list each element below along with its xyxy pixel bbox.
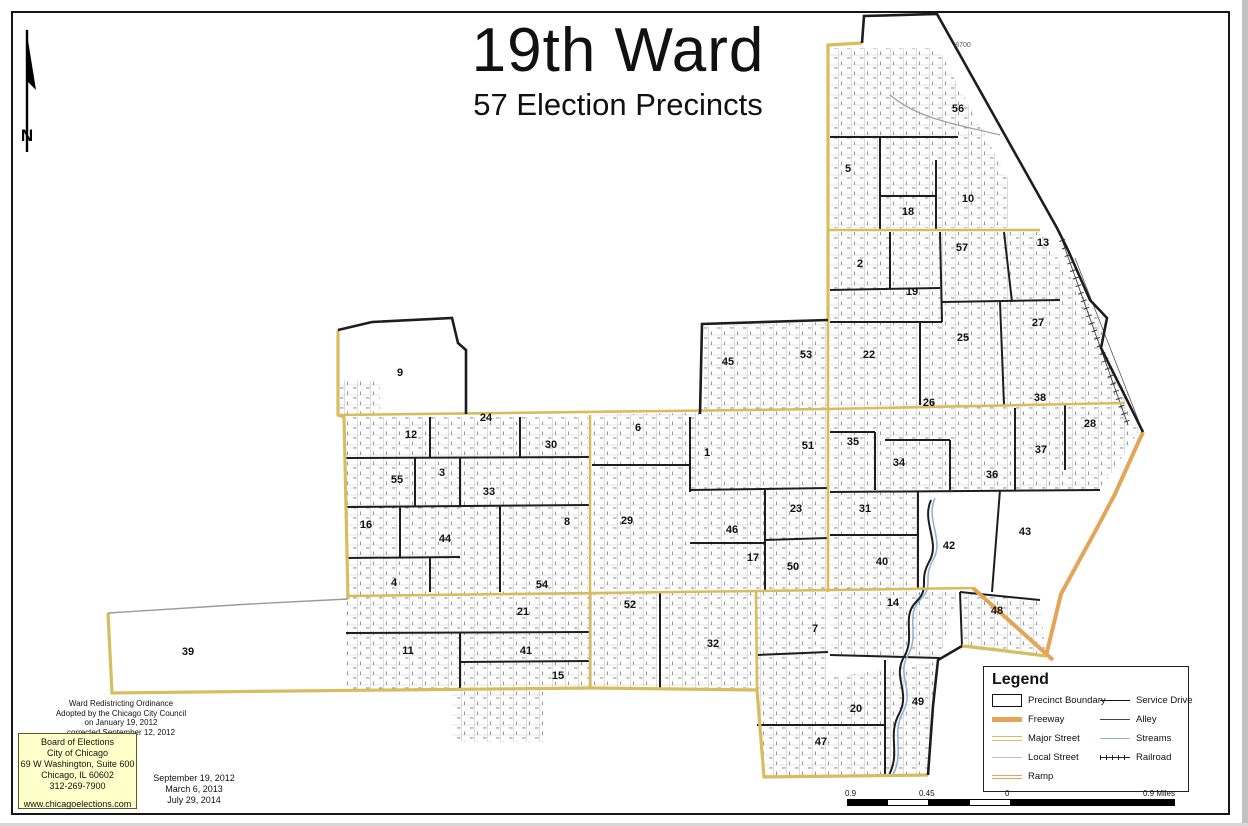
ordinance-note: Ward Redistricting OrdinanceAdopted by t… (26, 699, 216, 737)
legend-item-label: Major Street (1028, 733, 1080, 744)
precinct-1-label: 1 (704, 447, 710, 459)
precinct-36-label: 36 (986, 469, 998, 481)
precinct-2-label: 2 (857, 258, 863, 270)
major-street-swatch-icon (992, 736, 1022, 741)
precinct-50-label: 50 (787, 561, 799, 573)
legend-item: Major Street (992, 732, 1092, 745)
text-line: September 19, 2012 (138, 773, 250, 784)
legend-item: Streams (1100, 732, 1192, 745)
precinct-3-label: 3 (439, 467, 445, 479)
precinct-54-label: 54 (536, 579, 549, 591)
text-line: 312-269-7900 (19, 781, 136, 792)
precinct-49-label: 49 (912, 696, 924, 708)
text-line: Ward Redistricting Ordinance (26, 699, 216, 709)
precinct-10-label: 10 (962, 193, 974, 205)
precinct-boundary-swatch-icon (992, 694, 1022, 707)
precinct-12-label: 12 (405, 429, 417, 441)
scale-label-zero: 0 (1005, 789, 1009, 798)
legend-title: Legend (992, 671, 1188, 689)
legend-item: Alley (1100, 713, 1192, 726)
precinct-45-label: 45 (722, 356, 734, 368)
legend-item: Freeway (992, 713, 1092, 726)
precinct-15-label: 15 (552, 670, 564, 682)
precinct-52-label: 52 (624, 599, 636, 611)
local-street-swatch-icon (992, 757, 1022, 758)
precinct-43-label: 43 (1019, 526, 1031, 538)
text-line: on January 19, 2012 (26, 718, 216, 728)
legend-right-column: Service DriveAlleyStreamsRailroad (1100, 694, 1192, 783)
precinct-55-label: 55 (391, 474, 403, 486)
precinct-56-label: 56 (952, 103, 964, 115)
precinct-17-label: 17 (747, 552, 759, 564)
railroad-swatch-icon (1100, 755, 1130, 760)
legend-item-label: Ramp (1028, 771, 1053, 782)
precinct-57-label: 57 (956, 242, 968, 254)
precinct-5-label: 5 (845, 163, 851, 175)
precinct-34-label: 34 (893, 457, 906, 469)
text-line: City of Chicago (19, 748, 136, 759)
legend-item-label: Service Drive (1136, 695, 1193, 706)
precinct-8-label: 8 (564, 516, 570, 528)
legend-box: Legend Precinct BoundaryFreewayMajor Str… (983, 666, 1189, 792)
precinct-9-label: 9 (397, 367, 403, 379)
precinct-40-label: 40 (876, 556, 888, 568)
alley-swatch-icon (1100, 719, 1130, 720)
scale-label-left: 0.9 (845, 789, 856, 798)
legend-item: Ramp (992, 770, 1092, 783)
ward-map-page: N 12345678910111213141516171819202122232… (0, 0, 1248, 826)
precinct-48-label: 48 (991, 605, 1003, 617)
precinct-28-label: 28 (1084, 418, 1096, 430)
precinct-6-label: 6 (635, 422, 641, 434)
precinct-26-label: 26 (923, 397, 935, 409)
legend-item: Precinct Boundary (992, 694, 1092, 707)
legend-item-label: Railroad (1136, 752, 1171, 763)
legend-left-column: Precinct BoundaryFreewayMajor StreetLoca… (992, 694, 1092, 783)
legend-item: Railroad (1100, 751, 1192, 764)
precinct-29-label: 29 (621, 515, 633, 527)
legend-item-label: Freeway (1028, 714, 1064, 725)
precinct-32-label: 32 (707, 638, 719, 650)
freeway-swatch-icon (992, 717, 1022, 722)
text-line: July 29, 2014 (138, 795, 250, 806)
text-line: Board of Elections (19, 737, 136, 748)
precinct-20-label: 20 (850, 703, 862, 715)
legend-item-label: Local Street (1028, 752, 1079, 763)
precinct-16-label: 16 (360, 519, 372, 531)
precinct-22-label: 22 (863, 349, 875, 361)
page-title: 19th Ward (338, 18, 898, 83)
precinct-27-label: 27 (1032, 317, 1044, 329)
precinct-51-label: 51 (802, 440, 814, 452)
precinct-4-label: 4 (391, 577, 398, 589)
legend-item-label: Streams (1136, 733, 1171, 744)
page-edge (1242, 0, 1248, 826)
precinct-18-label: 18 (902, 206, 914, 218)
scale-bar: 0.9 0.45 0 0.9 Miles (845, 789, 1175, 809)
precinct-23-label: 23 (790, 503, 802, 515)
scale-label-right: 0.9 Miles (1143, 789, 1175, 798)
board-of-elections-box: Board of ElectionsCity of Chicago69 W Wa… (18, 733, 137, 809)
precinct-44-label: 44 (439, 533, 452, 545)
precinct-38-label: 38 (1034, 392, 1046, 404)
text-line: March 6, 2013 (138, 784, 250, 795)
revision-dates: September 19, 2012March 6, 2013July 29, … (138, 773, 250, 806)
precinct-42-label: 42 (943, 540, 955, 552)
precinct-24-label: 24 (480, 412, 493, 424)
text-line: Chicago, IL 60602 (19, 770, 136, 781)
north-arrow: N (21, 28, 36, 152)
legend-item: Service Drive (1100, 694, 1192, 707)
legend-item-label: Alley (1136, 714, 1157, 725)
precinct-47-label: 47 (815, 736, 827, 748)
precinct-30-label: 30 (545, 439, 557, 451)
service-drive-swatch-icon (1100, 700, 1130, 702)
text-line: 69 W Washington, Suite 600 (19, 759, 136, 770)
precinct-14-label: 14 (887, 597, 900, 609)
precinct-7-label: 7 (812, 623, 818, 635)
precinct-31-label: 31 (859, 503, 871, 515)
legend-item: Local Street (992, 751, 1092, 764)
precinct-53-label: 53 (800, 349, 812, 361)
page-subtitle: 57 Election Precincts (338, 87, 898, 123)
precinct-11-label: 11 (402, 645, 414, 657)
scale-label-mid: 0.45 (919, 789, 935, 798)
map-edge-labels: 8700 (955, 42, 971, 49)
precinct-35-label: 35 (847, 436, 859, 448)
ramp-swatch-icon (992, 775, 1022, 779)
precinct-21-label: 21 (517, 606, 529, 618)
grid-number-label: 8700 (955, 42, 971, 49)
precinct-39-label: 39 (182, 646, 194, 658)
text-line: www.chicagoelections.com (19, 799, 136, 810)
text-line: Adopted by the Chicago City Council (26, 709, 216, 719)
north-label: N (21, 126, 33, 145)
precinct-37-label: 37 (1035, 444, 1047, 456)
legend-item-label: Precinct Boundary (1028, 695, 1106, 706)
precinct-41-label: 41 (520, 645, 532, 657)
title-block: 19th Ward 57 Election Precincts (338, 18, 898, 123)
precinct-46-label: 46 (726, 524, 738, 536)
precinct-25-label: 25 (957, 332, 969, 344)
precinct-13-label: 13 (1037, 237, 1049, 249)
precinct-19-label: 19 (906, 286, 918, 298)
precinct-33-label: 33 (483, 486, 495, 498)
scale-bar-segments (847, 799, 1175, 806)
streams-swatch-icon (1100, 738, 1130, 740)
